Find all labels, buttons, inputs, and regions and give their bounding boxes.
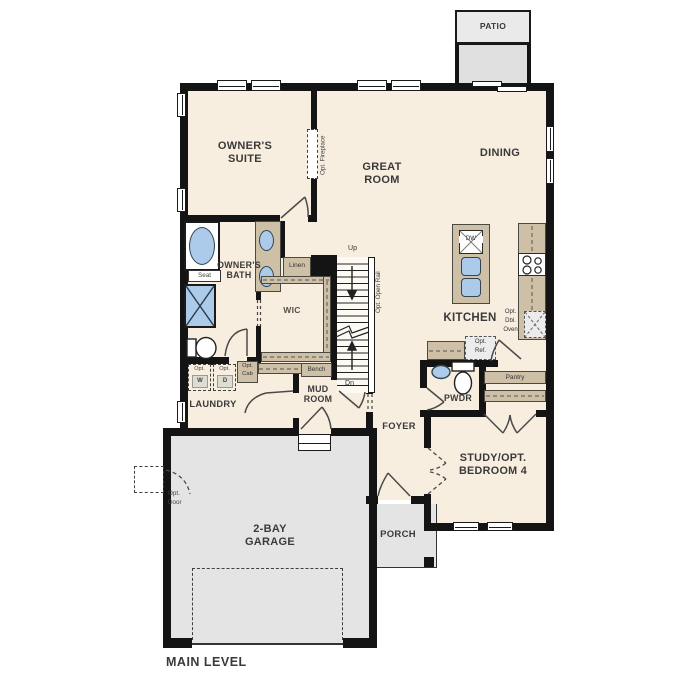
owners-suite-label: OWNER'S SUITE	[200, 140, 290, 166]
wall-study-west-d	[424, 494, 431, 524]
garage-slab-edge	[192, 643, 343, 645]
wall-study-top-l	[420, 410, 484, 417]
opt-cabinet-label-2: Cab	[238, 371, 257, 377]
opt-oven-label-3: Oven	[498, 327, 523, 334]
floor-plan-canvas: PATIO Opt. Fireplace	[0, 0, 687, 687]
opt-fridge-label-2: Ref.	[466, 348, 495, 355]
stairs-up-label: Up	[344, 245, 361, 253]
window-suite-left-2	[177, 188, 186, 212]
opt-dryer-prefix: Opt.	[214, 366, 235, 372]
opt-double-oven	[524, 311, 546, 338]
opt-door-label-2: Door	[168, 499, 194, 506]
island-sink-1	[461, 257, 481, 276]
wall-study-top-r	[536, 410, 553, 417]
window-great-top-2	[391, 80, 421, 91]
porch-column	[424, 557, 434, 567]
wic-shelf-top	[261, 276, 331, 284]
opt-door-label-1: Opt.	[168, 490, 194, 497]
mud-room-label: MUD ROOM	[296, 384, 340, 405]
patio-label: PATIO	[457, 21, 529, 31]
shower	[184, 284, 216, 328]
wall-garage-bottom-l	[163, 638, 192, 648]
opt-washer-prefix: Opt.	[189, 366, 210, 372]
foyer-label: FOYER	[378, 421, 420, 432]
washer-label: W	[192, 378, 208, 385]
dryer-label: D	[217, 378, 233, 385]
window-study-bottom-1	[453, 522, 479, 531]
window-suite-top-2	[251, 80, 281, 91]
kitchen-label: KITCHEN	[440, 312, 500, 326]
opt-oven-label-1: Opt.	[498, 309, 523, 316]
plan-title: MAIN LEVEL	[166, 655, 266, 670]
wall-garage-right	[369, 428, 377, 648]
dishwasher-label: DW	[459, 236, 483, 243]
stairs-dn-label: Dn	[341, 380, 358, 388]
opt-door-box	[134, 466, 164, 493]
cooktop	[518, 253, 546, 276]
wic-shelf-bottom	[261, 352, 331, 362]
patio-slab	[455, 44, 531, 86]
garage-step	[298, 434, 331, 451]
laundry-label: LAUNDRY	[185, 399, 241, 410]
owners-bath-label: OWNER'S BATH	[212, 260, 266, 281]
window-suite-top-1	[217, 80, 247, 91]
opt-fridge-label-1: Opt.	[466, 339, 495, 346]
wall-garage-top-l	[163, 428, 299, 436]
dining-label: DINING	[472, 147, 528, 160]
opt-cabinet-label-1: Opt.	[238, 363, 257, 369]
wall-vanity-east	[281, 221, 285, 258]
pwdr-label: PWDR	[437, 393, 479, 403]
opt-oven-label-2: Dbl.	[498, 318, 523, 325]
wall-pwdr-north	[420, 360, 498, 367]
wall-pwdr-east	[479, 360, 486, 417]
wall-garage-left	[163, 428, 171, 648]
window-suite-left-1	[177, 93, 186, 117]
wic-shelf-right	[323, 276, 331, 360]
great-room-label: GREAT ROOM	[352, 161, 412, 187]
study-label: STUDY/OPT. BEDROOM 4	[446, 452, 540, 477]
kitchen-lower-counter	[427, 341, 465, 360]
garage-door	[192, 568, 343, 640]
stairwell	[337, 257, 368, 393]
linen-label: Linen	[283, 262, 311, 269]
wall-suite-bottom-r	[308, 215, 317, 222]
mud-counter-strip	[258, 363, 303, 374]
wall-suite-great-upper	[311, 90, 317, 130]
wall-foyer-west-d	[366, 412, 373, 436]
vanity-sink-1	[259, 230, 274, 251]
opt-fireplace-box	[307, 129, 318, 179]
wall-study-west-u	[424, 417, 431, 448]
window-dining-right-1	[546, 126, 554, 152]
wall-pwdr-west	[420, 360, 427, 388]
porch-label: PORCH	[377, 529, 419, 540]
window-dining-right-2	[546, 158, 554, 184]
window-study-bottom-2	[487, 522, 513, 531]
pantry-label: Pantry	[484, 374, 546, 381]
bench-label: Bench	[301, 366, 332, 373]
wic-label: WIC	[276, 305, 308, 315]
window-great-top-1	[357, 80, 387, 91]
wall-garage-bottom-r	[343, 638, 377, 648]
garage-label: 2-BAY GARAGE	[228, 523, 312, 549]
wall-laundry-mud-d	[293, 418, 299, 432]
pantry-shelf-2	[484, 390, 546, 402]
opt-fireplace-label: Opt. Fireplace	[318, 125, 328, 185]
opt-open-rail-label: Opt. Open Rail	[374, 262, 383, 322]
island-sink-2	[461, 278, 481, 297]
patio-slider-panel-2	[497, 86, 527, 92]
